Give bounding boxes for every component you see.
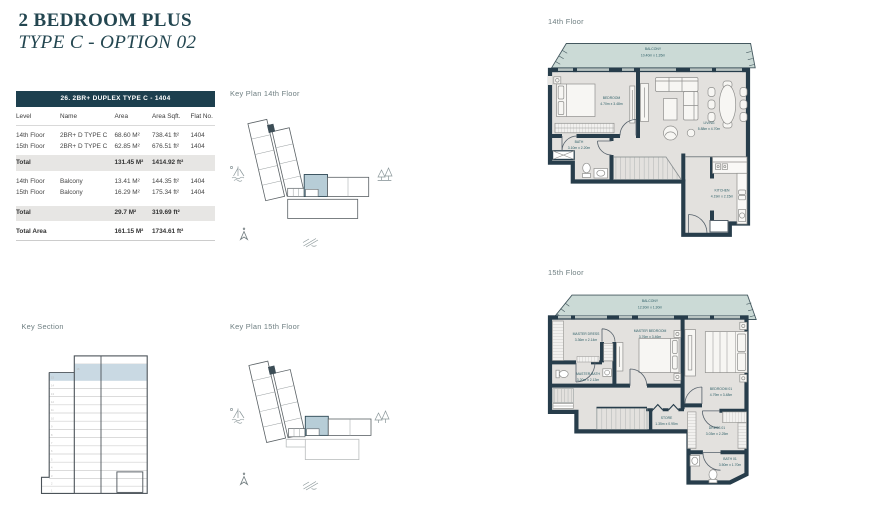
svg-text:7: 7 [51,441,53,445]
svg-text:5.88m x 4.70m: 5.88m x 4.70m [698,127,721,131]
svg-text:BATH 01: BATH 01 [723,457,737,461]
svg-text:BEDROOM: BEDROOM [603,96,621,100]
svg-text:3.76m x 3.46m: 3.76m x 3.46m [639,335,662,339]
svg-text:12: 12 [51,400,54,404]
svg-text:3.36m x 2.14m: 3.36m x 2.14m [575,338,598,342]
svg-text:5: 5 [51,457,53,461]
svg-text:3: 3 [51,474,53,478]
svg-text:8: 8 [51,433,53,437]
svg-text:LIVING: LIVING [703,121,714,125]
svg-text:MASTER DRESS: MASTER DRESS [573,332,600,336]
svg-text:10.40m x 1.35m: 10.40m x 1.35m [641,54,665,58]
svg-text:BATH: BATH [575,140,584,144]
svg-text:2: 2 [51,482,53,486]
svg-text:KITCHEN: KITCHEN [715,189,730,193]
svg-text:BALCONY: BALCONY [645,47,662,51]
svg-text:10: 10 [51,416,54,420]
svg-text:4.79m x 3.48m: 4.79m x 3.48m [710,393,733,397]
svg-text:4: 4 [51,466,53,470]
svg-text:1: 1 [51,489,53,493]
svg-text:6: 6 [51,449,53,453]
svg-text:3.20m x 2.13m: 3.20m x 2.13m [577,378,600,382]
svg-text:4.70m x 3.48m: 4.70m x 3.48m [600,102,623,106]
svg-text:4.19m x 2.15m: 4.19m x 2.15m [711,195,734,199]
svg-text:DRESS 01: DRESS 01 [709,426,726,430]
svg-text:12.30m x 1.30m: 12.30m x 1.30m [638,306,662,310]
svg-text:13: 13 [51,392,54,396]
svg-text:BALCONY: BALCONY [642,299,659,303]
svg-text:MASTER BEDROOM: MASTER BEDROOM [634,329,667,333]
svg-text:14: 14 [51,384,54,388]
svg-text:STORE: STORE [661,416,673,420]
svg-text:9: 9 [51,425,53,429]
svg-text:3.03m x 2.25m: 3.03m x 2.25m [706,432,729,436]
svg-text:1.35m x 0.95m: 1.35m x 0.95m [655,422,678,426]
svg-text:MASTER BATH: MASTER BATH [576,372,600,376]
svg-text:3.10m x 2.20m: 3.10m x 2.20m [568,146,591,150]
svg-text:11: 11 [51,408,54,412]
svg-text:BEDROOM 01: BEDROOM 01 [710,387,732,391]
svg-text:3.50m x 1.70m: 3.50m x 1.70m [719,463,742,467]
